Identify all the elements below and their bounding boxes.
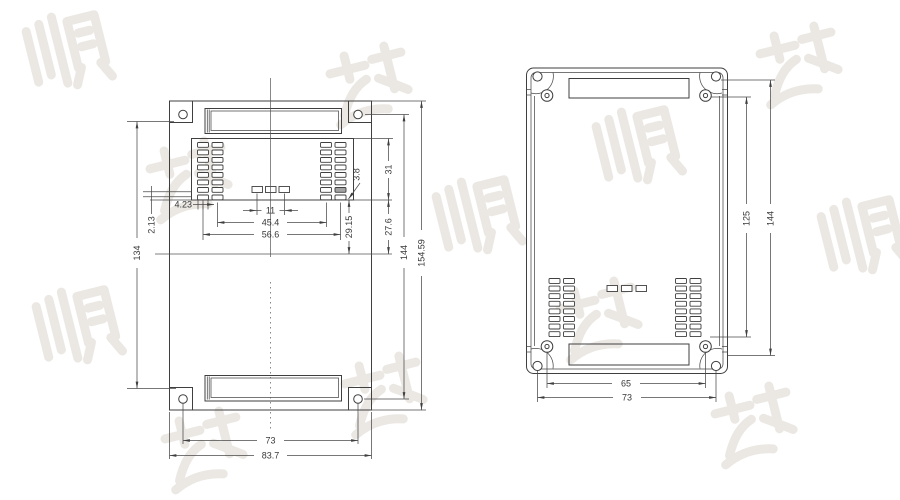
vent-grid-right <box>321 143 347 200</box>
vent-slot <box>321 180 332 185</box>
dim-label-31: 31 <box>384 164 394 174</box>
vent-slot <box>564 279 575 284</box>
top-slot <box>205 109 342 134</box>
vent-slot <box>676 286 687 291</box>
vent-slot <box>198 180 209 185</box>
lid-screw-hole <box>533 72 542 81</box>
vent-slot <box>549 279 560 284</box>
dim-label-2-13: 2.13 <box>147 216 157 234</box>
dim-label-125: 125 <box>742 211 752 226</box>
vent-grid-right <box>676 279 702 337</box>
dim-label-154-59: 154.59 <box>417 239 427 267</box>
vent-slot <box>690 309 701 314</box>
vent-slot <box>212 143 223 148</box>
vent-slot <box>321 143 332 148</box>
dim-label-65: 65 <box>621 379 631 389</box>
vent-slot <box>335 165 346 170</box>
vent-slot <box>321 188 332 193</box>
vent-slot <box>212 180 223 185</box>
technical-drawing-canvas: 顺达 <box>0 0 900 500</box>
vent-slot <box>690 324 701 329</box>
vent-slot <box>335 173 346 178</box>
vent-slot <box>198 165 209 170</box>
vent-slot <box>212 158 223 163</box>
vent-slot <box>335 195 346 200</box>
button-holes <box>607 286 647 292</box>
vent-slot <box>335 180 346 185</box>
vent-slot <box>212 195 223 200</box>
vent-slot <box>321 150 332 155</box>
vent-slot <box>564 332 575 337</box>
vent-slot <box>690 294 701 299</box>
vent-slot <box>676 309 687 314</box>
dim-label-11: 11 <box>266 206 275 216</box>
vent-slot <box>690 301 701 306</box>
vent-slot <box>676 332 687 337</box>
mounting-hole <box>354 395 363 404</box>
vent-slot <box>549 332 560 337</box>
vent-slot <box>321 195 332 200</box>
vent-slot <box>549 286 560 291</box>
vent-slot <box>321 158 332 163</box>
vent-slot <box>212 150 223 155</box>
dim-label-134: 134 <box>132 245 142 260</box>
dim-label-56-6: 56.6 <box>262 230 280 240</box>
vent-slot <box>198 143 209 148</box>
vent-slot <box>564 309 575 314</box>
vent-slot <box>335 188 346 193</box>
vent-slot <box>564 324 575 329</box>
vent-slot <box>690 286 701 291</box>
bottom-slot <box>205 376 342 402</box>
vent-slot <box>676 279 687 284</box>
dim-label-29-15: 29.15 <box>344 216 354 239</box>
vent-slot <box>212 188 223 193</box>
vent-slot <box>676 294 687 299</box>
vent-slot <box>564 317 575 322</box>
vent-slot <box>564 301 575 306</box>
dim-label-144-right: 144 <box>766 211 776 226</box>
dim-label-27-6: 27.6 <box>384 218 394 236</box>
mounting-hole <box>354 110 363 119</box>
vent-slot <box>549 294 560 299</box>
vent-slot <box>335 143 346 148</box>
lid-screw-hole <box>711 72 720 81</box>
vent-slot <box>676 324 687 329</box>
vent-slot <box>198 188 209 193</box>
vent-slot <box>198 158 209 163</box>
vent-slot <box>564 286 575 291</box>
vent-slot <box>690 279 701 284</box>
vent-slot <box>564 294 575 299</box>
vent-slot <box>549 309 560 314</box>
vent-slot <box>335 150 346 155</box>
vent-slot <box>198 173 209 178</box>
vent-slot <box>549 301 560 306</box>
vent-slot <box>690 317 701 322</box>
dim-label-3-8: 3.8 <box>352 168 362 181</box>
dim-label-144-left: 144 <box>399 245 409 260</box>
vent-slot <box>335 158 346 163</box>
vent-slot <box>212 165 223 170</box>
dim-label-73-right: 73 <box>622 393 632 403</box>
vent-slot <box>212 173 223 178</box>
right-view <box>527 68 728 374</box>
vent-slot <box>321 173 332 178</box>
vent-slot <box>321 165 332 170</box>
vent-slot <box>549 317 560 322</box>
mounting-hole <box>179 110 188 119</box>
top-cutout <box>569 79 689 99</box>
lid-screw-hole <box>533 361 542 370</box>
dim-label-73-left: 73 <box>265 436 275 446</box>
vent-slot <box>198 150 209 155</box>
lid-screw-hole <box>711 361 720 370</box>
vent-slot <box>676 317 687 322</box>
vent-slot <box>690 332 701 337</box>
vent-slot <box>198 195 209 200</box>
dim-label-83-7: 83.7 <box>262 451 280 461</box>
mounting-hole <box>179 395 188 404</box>
dim-label-4-23: 4.23 <box>174 200 192 210</box>
dim-label-45-4: 45.4 <box>262 218 280 228</box>
vent-slot <box>676 301 687 306</box>
vent-slot <box>549 324 560 329</box>
watermark: 顺达 <box>24 6 900 490</box>
left-view-dimensions: 134 2.13 4.23 11 45.4 56.6 3.8 31 27.6 2… <box>127 101 427 461</box>
